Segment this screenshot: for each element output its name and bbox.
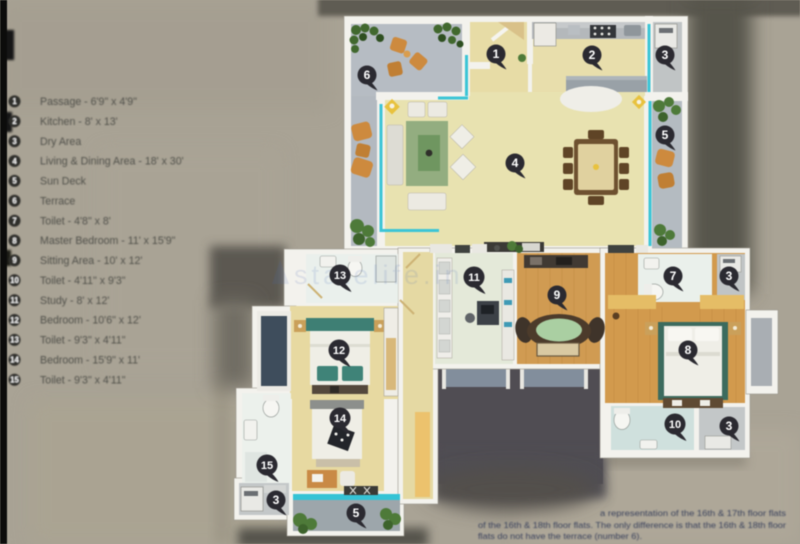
- svg-text:3: 3: [726, 269, 733, 283]
- svg-text:Bedroom - 15'9" x 11': Bedroom - 15'9" x 11': [40, 355, 140, 367]
- svg-text:4: 4: [12, 157, 17, 166]
- svg-text:5: 5: [353, 506, 360, 520]
- svg-text:8: 8: [685, 343, 692, 357]
- svg-text:Toilet - 9'3" x 4'11": Toilet - 9'3" x 4'11": [40, 335, 126, 347]
- svg-text:11: 11: [10, 296, 19, 305]
- svg-text:3: 3: [662, 48, 669, 62]
- svg-text:15: 15: [10, 376, 19, 385]
- svg-text:7: 7: [670, 269, 677, 283]
- svg-text:Living & Dining Area - 18' x 3: Living & Dining Area - 18' x 30': [40, 156, 184, 168]
- svg-text:Master Bedroom - 11' x 15'9": Master Bedroom - 11' x 15'9": [40, 235, 176, 247]
- svg-text:3: 3: [273, 493, 280, 507]
- svg-text:Study - 8' x 12': Study - 8' x 12': [40, 295, 109, 307]
- svg-text:14: 14: [10, 356, 19, 365]
- svg-text:4: 4: [512, 156, 519, 170]
- svg-text:of the 16th & 18th floor flats: of the 16th & 18th floor flats. The only…: [478, 520, 786, 530]
- svg-text:a representation of the 16th &: a representation of the 16th & 17th floo…: [600, 508, 786, 518]
- svg-text:6: 6: [12, 197, 17, 206]
- svg-text:15: 15: [261, 460, 273, 472]
- svg-text:Sun Deck: Sun Deck: [40, 176, 87, 188]
- svg-text:Terrace: Terrace: [40, 196, 75, 208]
- svg-text:10: 10: [10, 276, 19, 285]
- svg-text:Kitchen - 8' x 13': Kitchen - 8' x 13': [40, 116, 118, 128]
- svg-text:flats do not have the terrace: flats do not have the terrace (number 6)…: [478, 531, 642, 541]
- svg-text:9: 9: [12, 256, 17, 265]
- svg-text:Dry Area: Dry Area: [40, 136, 81, 148]
- svg-text:13: 13: [10, 336, 19, 345]
- svg-text:1: 1: [12, 97, 17, 106]
- svg-text:14: 14: [334, 413, 347, 425]
- svg-text:statelife.in: statelife.in: [294, 260, 464, 290]
- svg-text:7: 7: [12, 217, 16, 226]
- svg-text:Passage - 6'9" x 4'9": Passage - 6'9" x 4'9": [40, 96, 137, 108]
- svg-text:6: 6: [364, 68, 371, 82]
- svg-text:Toilet - 9'3" x 4'11": Toilet - 9'3" x 4'11": [40, 374, 126, 386]
- svg-text:2: 2: [12, 117, 17, 126]
- svg-text:9: 9: [554, 288, 561, 302]
- svg-text:Bedroom - 10'6" x 12': Bedroom - 10'6" x 12': [40, 315, 141, 327]
- svg-text:1: 1: [493, 47, 500, 61]
- svg-text:8: 8: [12, 236, 17, 245]
- svg-text:13: 13: [334, 270, 346, 282]
- svg-text:2: 2: [589, 48, 596, 62]
- svg-text:3: 3: [726, 419, 733, 433]
- svg-text:12: 12: [10, 316, 19, 325]
- svg-text:Sitting Area - 10' x 12': Sitting Area - 10' x 12': [40, 255, 142, 267]
- svg-text:11: 11: [468, 272, 480, 284]
- svg-text:3: 3: [12, 137, 17, 146]
- svg-text:Toilet - 4'8" x 8': Toilet - 4'8" x 8': [40, 215, 111, 227]
- svg-text:Toilet - 4'11" x 9'3": Toilet - 4'11" x 9'3": [40, 275, 126, 287]
- svg-text:5: 5: [12, 177, 17, 186]
- svg-text:5: 5: [662, 128, 669, 142]
- svg-text:10: 10: [669, 419, 681, 431]
- svg-text:12: 12: [333, 345, 345, 357]
